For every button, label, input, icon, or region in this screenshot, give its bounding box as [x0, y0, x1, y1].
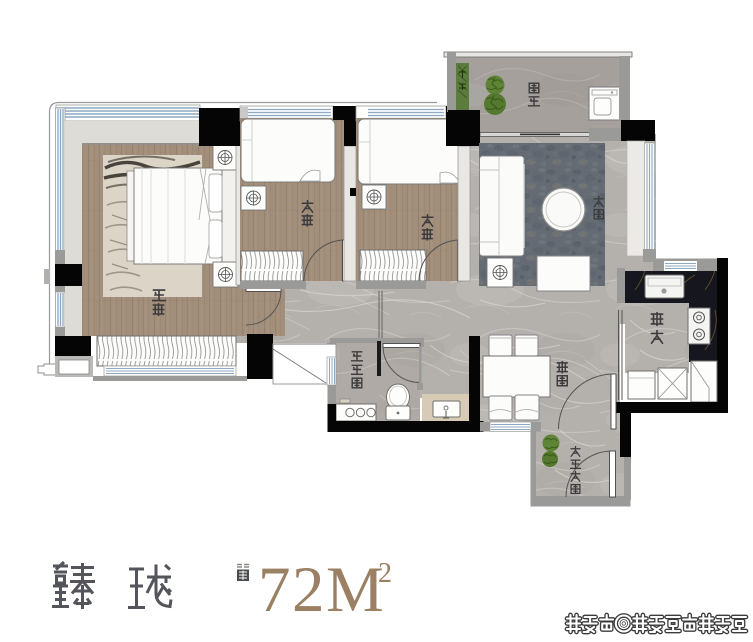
svg-text:72M: 72M [258, 554, 385, 626]
svg-text:2: 2 [378, 558, 392, 589]
